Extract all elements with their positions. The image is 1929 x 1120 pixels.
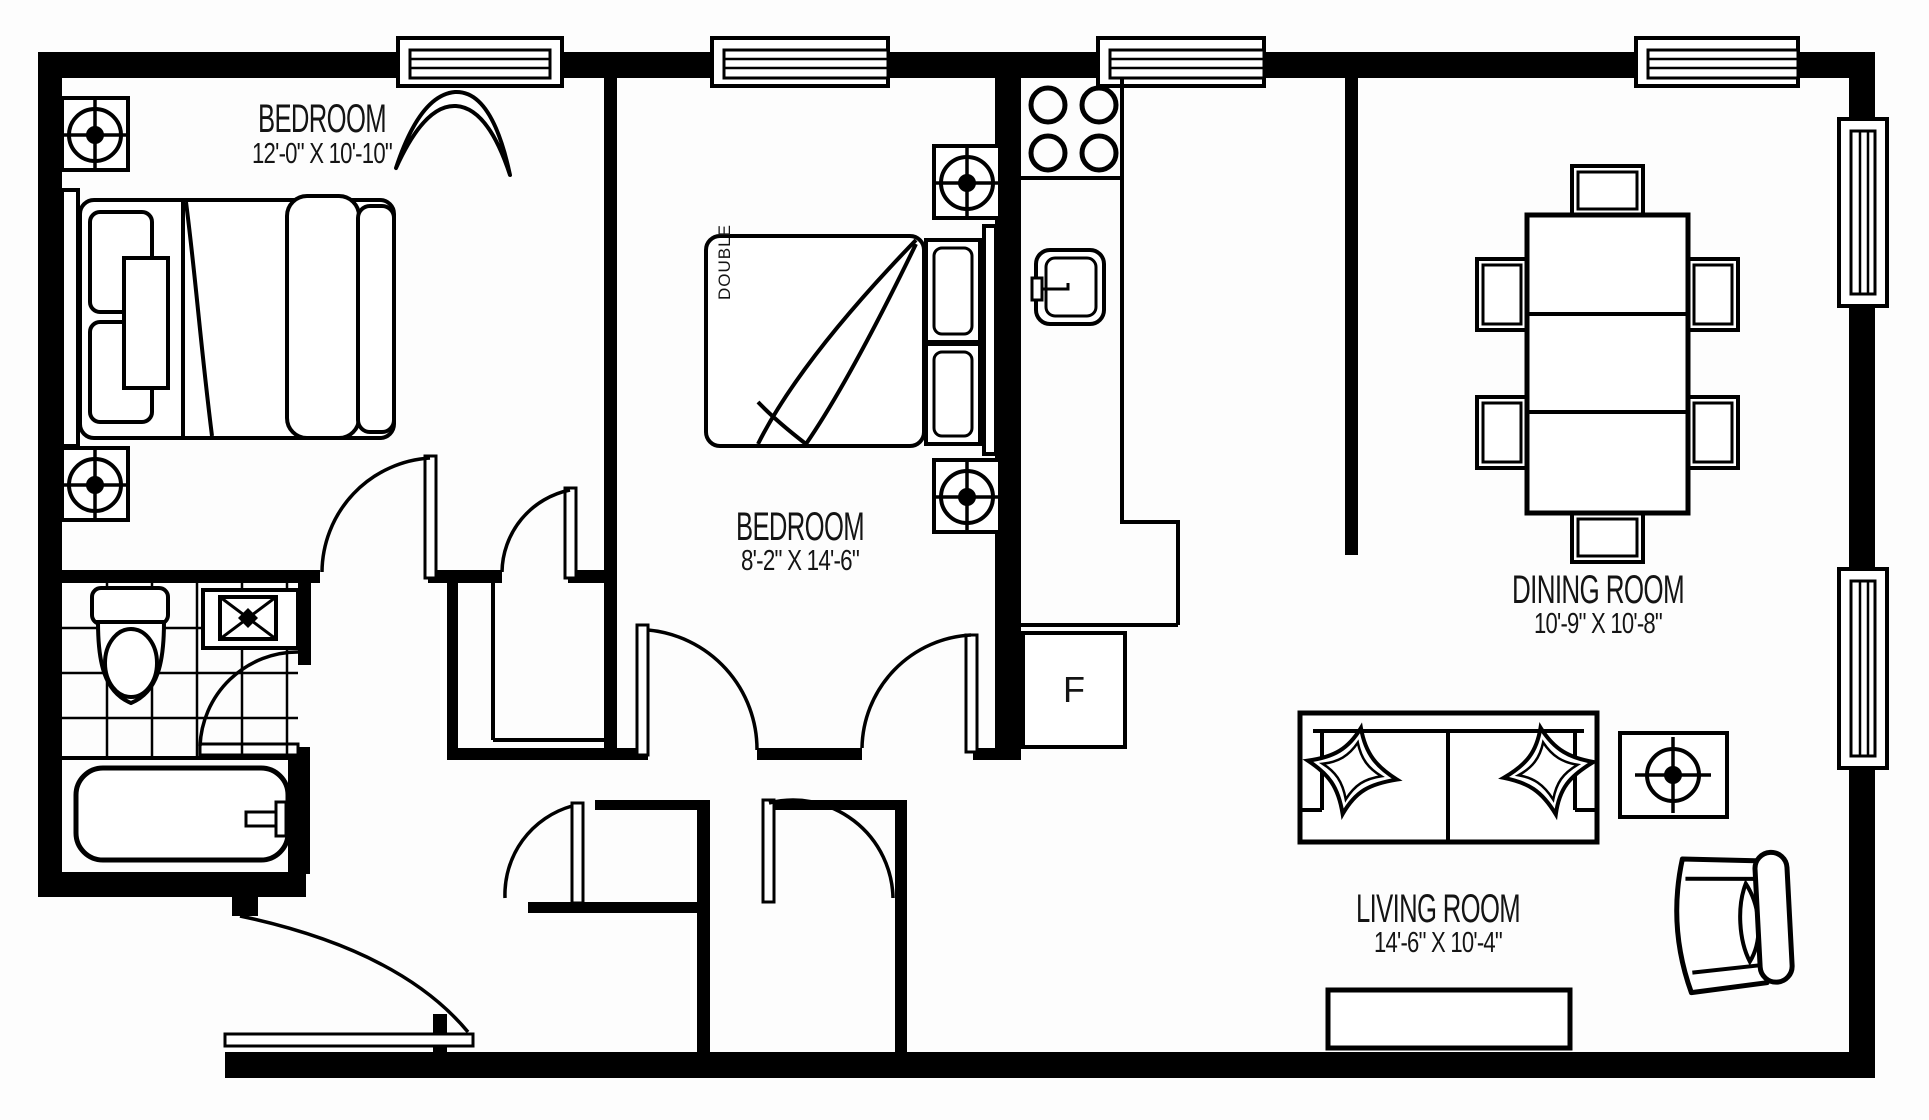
nightstand-lamp <box>62 98 128 170</box>
wall-top <box>38 52 1875 78</box>
door-kitchen-hall <box>862 635 977 752</box>
nightstand-lamp <box>934 460 1000 532</box>
living-room-dimensions: 14'-6" X 10'-4" <box>1374 927 1503 959</box>
living-furniture <box>1299 713 1794 1048</box>
window-dining-right <box>1839 119 1887 306</box>
dining-chair <box>1572 166 1643 215</box>
bed-single <box>62 190 394 446</box>
dining-chair <box>1477 397 1527 468</box>
toilet <box>92 588 168 703</box>
dining-table <box>1527 215 1688 513</box>
door-hall-closet-right <box>763 800 893 902</box>
living-room-name: LIVING ROOM <box>1356 887 1520 931</box>
dining-chair <box>1688 397 1738 468</box>
kitchen-sink <box>1032 250 1104 324</box>
wall-hall-closet-mid <box>528 902 706 913</box>
bed-blanket-roll <box>287 196 359 438</box>
floor-plan-drawing: F <box>0 0 1929 1120</box>
window-living-right <box>1839 569 1887 768</box>
door-closet-bedroom1 <box>502 488 576 578</box>
dining-chair <box>1688 259 1738 330</box>
wall-hall-closet-right <box>895 800 907 1052</box>
dining-room-name: DINING ROOM <box>1512 568 1684 612</box>
wall-bathroom-top <box>38 570 320 583</box>
floor-plan-page: F <box>0 0 1929 1120</box>
bed-pillow-inner <box>934 352 972 436</box>
bedroom1-name: BEDROOM <box>258 97 386 141</box>
bed-pillow-inner <box>934 248 972 334</box>
bedroom2-furniture: DOUBLE <box>706 146 1000 532</box>
nightstand-lamp <box>934 146 1000 218</box>
bed-headboard <box>984 226 996 454</box>
wall-entry-step <box>232 897 258 916</box>
dining-room-dimensions: 10'-9" X 10'-8" <box>1534 608 1663 640</box>
dining-furniture <box>1477 166 1738 562</box>
window-bedroom1 <box>398 38 562 86</box>
bed-double: DOUBLE <box>706 224 996 454</box>
wall-bathroom-right-lower <box>288 747 310 874</box>
refrigerator: F <box>1023 633 1125 747</box>
refrigerator-label: F <box>1063 669 1085 710</box>
closet-inner-lines <box>493 583 604 740</box>
vanity-sink <box>203 590 298 648</box>
wall-hall-closet-top-left <box>595 800 703 810</box>
bed-pillow-inner <box>124 258 168 388</box>
nightstand-lamp <box>62 448 128 520</box>
sofa <box>1299 713 1601 842</box>
armchair <box>1674 852 1794 994</box>
armchair-back <box>1754 852 1793 983</box>
wall-hall-closet-divider <box>697 800 710 1052</box>
wall-bottom <box>225 1052 1875 1078</box>
swing-arc-symbol <box>396 92 510 175</box>
wall-bedroom2-bottom-b <box>757 748 862 760</box>
door-bedroom1 <box>322 456 436 578</box>
tv-console <box>1328 990 1570 1048</box>
window-dining <box>1636 38 1798 86</box>
wall-closet-top-left <box>428 570 502 583</box>
door-bathroom <box>200 652 298 755</box>
stove-4-burner <box>1021 78 1122 178</box>
dining-chair <box>1477 259 1527 330</box>
bedroom2-dimensions: 8'-2" X 14'-6" <box>741 545 860 577</box>
dining-chair <box>1572 513 1643 562</box>
bed-blanket-end <box>358 206 394 432</box>
bedroom1-dimensions: 12'-0" X 10'-10" <box>252 138 393 170</box>
kitchen: F <box>1021 78 1178 747</box>
door-bedroom2 <box>637 625 757 755</box>
bathroom <box>62 583 298 860</box>
bed-headboard <box>62 190 78 446</box>
kitchen-counter <box>1021 178 1178 625</box>
wall-left <box>38 52 62 897</box>
wall-closet-left <box>447 583 458 760</box>
wall-bathroom-bottom <box>38 872 306 897</box>
side-table-lamp <box>1620 733 1727 817</box>
bathtub <box>76 768 288 860</box>
bed-size-label: DOUBLE <box>715 224 734 300</box>
door-hall-closet-left <box>505 803 583 903</box>
wall-kitchen-dining-divider <box>1345 78 1358 555</box>
wall-closet-bottom <box>447 748 617 760</box>
window-bedroom2 <box>712 38 888 86</box>
wall-bedrooms-divider <box>604 78 617 760</box>
bedroom2-name: BEDROOM <box>736 505 864 549</box>
